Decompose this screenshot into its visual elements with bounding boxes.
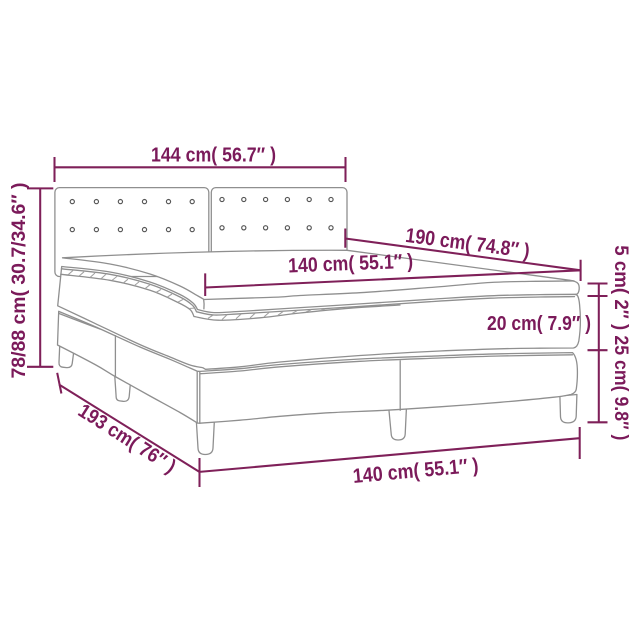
svg-text:5 cm( 2″ ): 5 cm( 2″ ) (610, 245, 631, 330)
svg-text:78/88 cm( 30.7/34.6″ ): 78/88 cm( 30.7/34.6″ ) (8, 183, 30, 379)
svg-text:20 cm( 7.9″ ): 20 cm( 7.9″ ) (487, 312, 591, 335)
svg-text:144 cm( 56.7″ ): 144 cm( 56.7″ ) (151, 144, 276, 167)
svg-text:140 cm( 55.1″ ): 140 cm( 55.1″ ) (288, 250, 414, 278)
svg-text:25 cm( 9.8″ ): 25 cm( 9.8″ ) (610, 335, 631, 440)
